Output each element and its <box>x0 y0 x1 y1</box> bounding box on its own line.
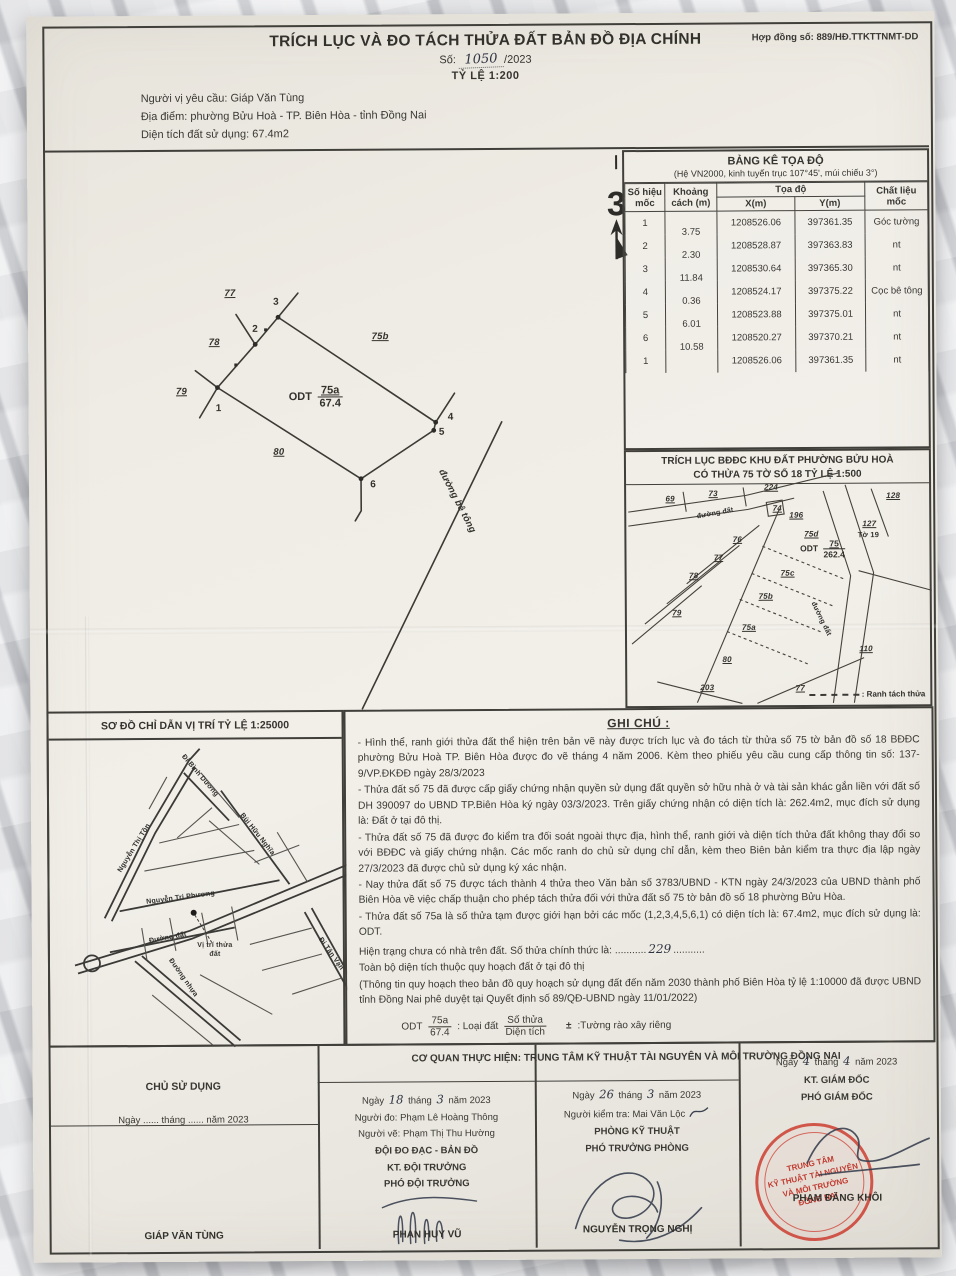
note-line: - Hình thể, ranh giới thửa đất thể hiện … <box>358 732 920 782</box>
note-line: (Thông tin quy hoạch theo bản đồ quy hoạ… <box>359 974 921 1008</box>
map-label: 196 <box>789 511 803 520</box>
map-legend: : Ranh tách thửa <box>810 689 926 699</box>
map-label: 80 <box>722 655 731 664</box>
date-day-handwritten: 4 <box>801 1054 812 1068</box>
wall-symbol-icon: ± <box>566 1021 572 1032</box>
photo-background: TRÍCH LỤC VÀ ĐO TÁCH THỬA ĐẤT BẢN ĐỒ ĐỊA… <box>0 0 956 1276</box>
approval-date: Ngày 4 tháng 4 năm 2023 <box>739 1050 935 1072</box>
surveyor-name: Người đo: Phạm Lê Hoàng Thông <box>318 1109 535 1127</box>
col-header-material: Chất liệu mốc <box>865 182 928 210</box>
date-word: tháng <box>408 1095 432 1106</box>
date-day-handwritten: 18 <box>387 1092 406 1106</box>
location-map-box: SƠ ĐỒ CHỈ DẪN VỊ TRÍ TỶ LỆ 1:25000 <box>46 710 345 1048</box>
date-word: năm 2023 <box>659 1090 701 1101</box>
director-authority-label: KT. GIÁM ĐỐC <box>739 1071 935 1089</box>
parcel-75a-area-label: ODT 75a67.4 <box>289 384 343 409</box>
location-map-lines <box>48 712 347 1050</box>
notes-title: GHI CHÚ : <box>357 714 919 731</box>
deputy-director-label: PHÓ GIÁM ĐỐC <box>739 1088 935 1106</box>
parcel-number: 75 <box>823 538 844 549</box>
signer-name-pham-dang-khoi: PHẠM ĐĂNG KHÔI <box>739 1192 935 1204</box>
map-label: 4 <box>448 412 454 423</box>
coordinate-row: 40.361208524.17397375.22Cọc bê tông <box>625 279 928 304</box>
map-label: 75b <box>372 331 389 342</box>
col-header-distance: Khoảng cách (m) <box>665 183 717 211</box>
legend-text: : Ranh tách thửa <box>862 689 926 698</box>
coordinate-table: Số hiệu mốc Khoảng cách (m) Tọa độ Chất … <box>624 181 929 373</box>
header-info: Người vị yêu cầu: Giáp Văn Tùng Địa điểm… <box>141 85 919 144</box>
coordinate-row: 311.841208530.64397365.30nt <box>625 256 928 281</box>
notes-list: - Hình thể, ranh giới thửa đất thể hiện … <box>358 732 922 1008</box>
parcel-drawing-lines <box>44 153 625 713</box>
note-line: - Nay thửa đất số 75 được tách thành 4 t… <box>358 874 920 908</box>
signature-mai-van-loc <box>688 1104 710 1118</box>
area-line: Diện tích đất sử dụng: 67.4m2 <box>141 122 919 145</box>
map-label: 76 <box>733 535 742 544</box>
land-user-date: Ngày ...... tháng ...... năm 2023 <box>49 1114 318 1127</box>
col-header-y: Y(m) <box>795 196 865 210</box>
dashed-line-icon <box>810 694 860 696</box>
coordinate-row: 56.011208523.88397375.01nt <box>625 302 928 327</box>
map-label: Tờ 19 <box>858 530 879 539</box>
map-label: Vị trí thửa đất <box>197 942 233 960</box>
date-month-handwritten: 3 <box>645 1087 656 1101</box>
coordinate-row: 13.751208526.06397361.35Góc tường <box>625 210 928 235</box>
team-leader-label: KT. ĐỘI TRƯỞNG <box>318 1159 535 1177</box>
map-label: 110 <box>859 644 872 653</box>
legend-land-type-label: : Loại đất <box>457 1021 498 1032</box>
map-label: 3 <box>273 297 279 308</box>
date-word: tháng <box>618 1090 642 1101</box>
signature-table: CƠ QUAN THỰC HIỆN: TRUNG TÂM KỸ THUẬT TÀ… <box>48 1040 935 1250</box>
contract-number: Hợp đồng số: 889/HĐ.TTKTTNMT-DD <box>752 31 919 43</box>
parcel-area: 67.4 <box>430 1028 450 1039</box>
coordinate-table-box: BẢNG KÊ TỌA ĐỘ (Hệ VN2000, kinh tuyến tr… <box>622 148 931 450</box>
map-label: 75b <box>759 592 773 601</box>
map-label: 6 <box>370 479 376 490</box>
parcel-number: 75a <box>318 384 342 397</box>
map-label: 69 <box>665 494 674 503</box>
map-label: 78 <box>689 571 698 580</box>
map-scale: TỶ LỆ 1:200 <box>53 67 919 84</box>
document-paper: TRÍCH LỤC VÀ ĐO TÁCH THỬA ĐẤT BẢN ĐỒ ĐỊA… <box>26 11 942 1263</box>
map-label: 79 <box>176 386 187 397</box>
overview-map-box: TRÍCH LỤC BĐĐC KHU ĐẤT PHƯỜNG BỬU HOÀ CÓ… <box>624 448 933 708</box>
map-label: 127 <box>862 519 876 528</box>
map-label: 2 <box>252 324 258 335</box>
date-word: Ngày <box>776 1057 798 1068</box>
drafter-name: Người vẽ: Phạm Thị Thu Hường <box>318 1126 535 1144</box>
divider <box>318 1079 739 1083</box>
coordinate-row: 610.581208520.27397370.21nt <box>626 325 929 350</box>
land-user-column: CHỦ SỬ DỤNG Ngày ...... tháng ...... năm… <box>49 1046 319 1253</box>
note-line: Hiện trạng chưa có nhà trên đất. Số thửa… <box>359 938 921 960</box>
col-header-id: Số hiệu mốc <box>625 183 665 211</box>
coordinate-row: 11208526.06397361.35nt <box>626 348 929 373</box>
survey-date: Ngày 18 tháng 3 năm 2023 <box>318 1089 535 1111</box>
parcel-location-marker <box>191 910 197 916</box>
signature-pham-dang-khoi <box>799 1112 939 1183</box>
parcel-area: 67.4 <box>319 397 340 409</box>
map-label: 79 <box>672 608 681 617</box>
date-word: tháng <box>815 1057 839 1068</box>
parcel-number: 75a <box>428 1016 451 1028</box>
map-label: 203 <box>700 683 714 692</box>
map-label: 77 <box>796 684 805 693</box>
map-label: 75d <box>804 529 818 538</box>
check-date: Ngày 26 tháng 3 năm 2023 <box>535 1083 739 1105</box>
map-label: 5 <box>439 427 445 438</box>
director-column: Ngày 4 tháng 4 năm 2023 KT. GIÁM ĐỐC PHÓ… <box>739 1050 936 1248</box>
map-label: 224 <box>764 483 778 492</box>
map-label: 75a <box>742 623 756 632</box>
map-label: 128 <box>886 491 900 500</box>
checker-name: Người kiểm tra: Mai Văn Lộc <box>535 1104 739 1123</box>
note-line: - Thửa đất số 75a là số thửa tạm được gi… <box>359 906 921 940</box>
parcel-75-area-label: ODT 75262.4 <box>800 538 845 559</box>
date-day-handwritten: 26 <box>597 1087 616 1101</box>
signer-name-nguyen-trong-nghi: NGUYỄN TRỌNG NGHỊ <box>536 1223 740 1235</box>
signer-name-phan-huy-vu: PHAN HUY VŨ <box>319 1229 536 1241</box>
land-type-code: ODT <box>800 543 818 553</box>
technical-dept-label: PHÒNG KỸ THUẬT <box>535 1122 739 1140</box>
date-word: Ngày <box>572 1090 594 1101</box>
date-month-handwritten: 4 <box>841 1054 852 1068</box>
coordinate-table-title: BẢNG KÊ TỌA ĐỘ <box>624 150 927 168</box>
coordinate-row: 22.301208528.87397363.83nt <box>625 233 928 258</box>
date-word: Ngày <box>362 1096 384 1107</box>
map-label: 73 <box>708 489 717 498</box>
header-section: TRÍCH LỤC VÀ ĐO TÁCH THỬA ĐẤT BẢN ĐỒ ĐỊA… <box>42 21 929 152</box>
notes-legend: ODT 75a67.4 : Loại đất Số thửaDiện tích … <box>401 1013 921 1039</box>
date-word: năm 2023 <box>448 1095 490 1106</box>
land-type-code: ODT <box>401 1022 422 1033</box>
map-label: 77 <box>224 288 235 299</box>
notes-section: GHI CHÚ : - Hình thể, ranh giới thửa đất… <box>343 706 935 1046</box>
document-number-year: /2023 <box>504 54 532 66</box>
land-user-name: GIÁP VĂN TÙNG <box>50 1230 319 1243</box>
parcel-area: 262.4 <box>823 549 844 559</box>
map-label: 78 <box>209 337 220 348</box>
checker-name-text: Người kiểm tra: Mai Văn Lộc <box>564 1108 685 1120</box>
map-label: 80 <box>273 447 284 458</box>
map-label: 74 <box>773 504 782 513</box>
land-type-code: ODT <box>289 391 312 403</box>
survey-team-label: ĐỘI ĐO ĐẠC - BẢN ĐỒ <box>318 1143 535 1161</box>
land-user-title: CHỦ SỬ DỤNG <box>49 1080 318 1094</box>
date-word: năm 2023 <box>855 1056 897 1067</box>
note-line: - Thửa đất số 75 đã được cấp giấy chứng … <box>358 780 920 830</box>
parcel-drawing: ODT 75a67.4 1234567778798075bđường bê tô… <box>44 153 625 713</box>
overview-map-lines <box>626 450 935 710</box>
document-number-prefix: Số: <box>439 54 456 66</box>
legend-wall-label: :Tường rào xây riêng <box>577 1020 671 1032</box>
map-label: 75c <box>781 569 795 578</box>
note-line: - Thửa đất số 75 đã được đo kiểm tra đối… <box>358 827 920 877</box>
date-month-handwritten: 3 <box>434 1092 445 1106</box>
col-header-x: X(m) <box>717 197 795 211</box>
map-label: 77 <box>714 553 723 562</box>
legend-parcel-label: Số thửa <box>504 1015 546 1027</box>
survey-team-column: Ngày 18 tháng 3 năm 2023 Người đo: Phạm … <box>318 1089 536 1251</box>
document-number-handwritten: 1050 <box>459 51 505 69</box>
legend-area-label: Diện tích <box>505 1027 545 1038</box>
map-label: 1 <box>216 403 222 414</box>
col-header-coords: Tọa độ <box>717 182 865 197</box>
